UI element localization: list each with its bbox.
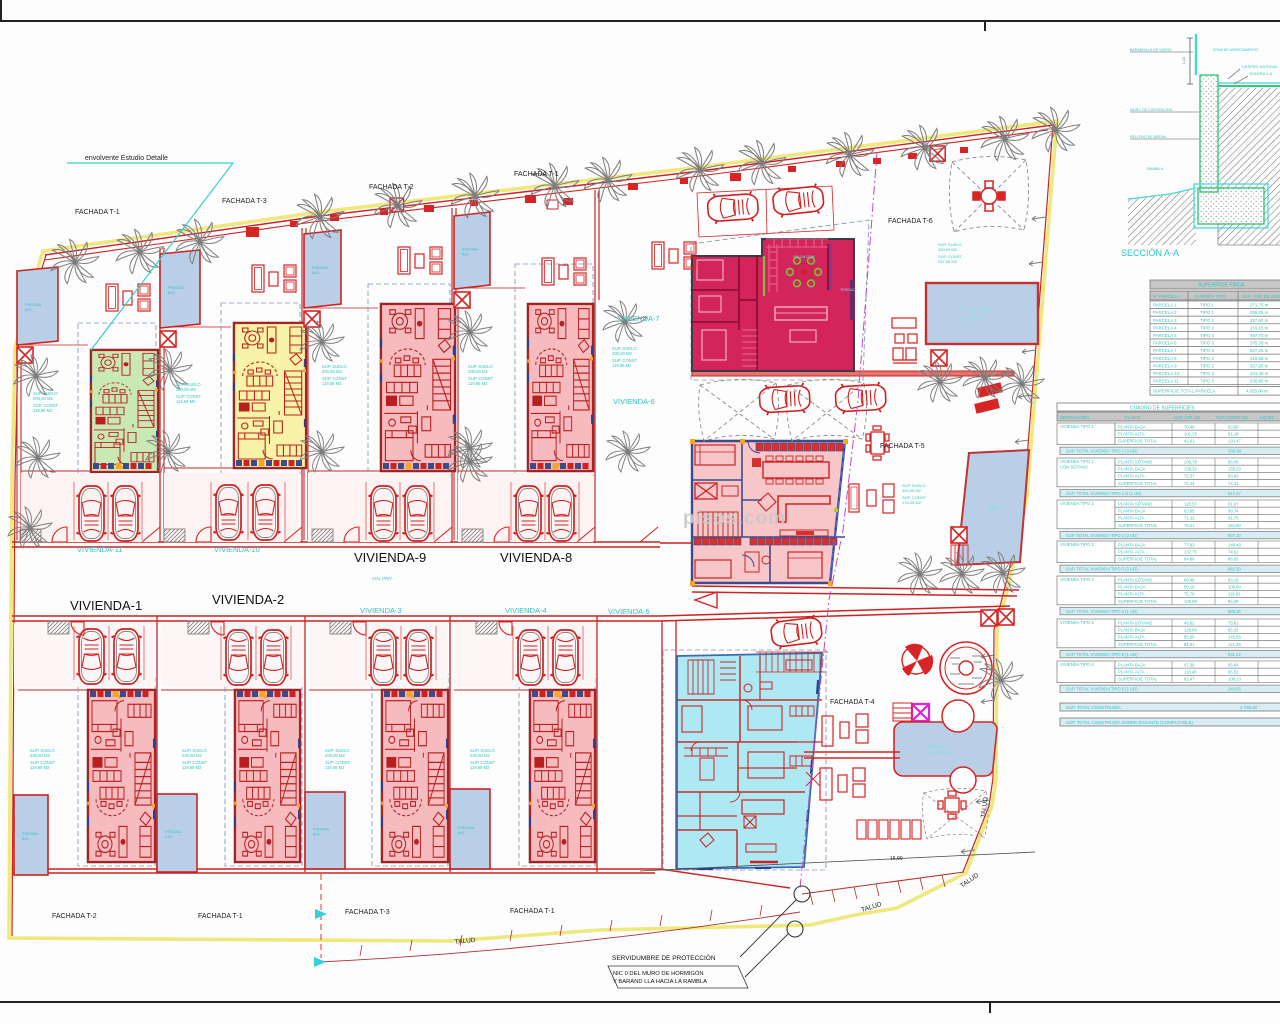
svg-text:119,66 M2: 119,66 M2 — [182, 765, 202, 770]
svg-text:216,15 m: 216,15 m — [1250, 325, 1269, 330]
svg-text:257,65 m: 257,65 m — [1250, 363, 1269, 368]
svg-text:40,00 m2: 40,00 m2 — [930, 750, 949, 755]
svg-text:RELLENO DE ARENA: RELLENO DE ARENA — [1130, 135, 1167, 139]
svg-text:257,60 m: 257,60 m — [1250, 318, 1269, 323]
svg-text:VIVIENDA TIPO 6: VIVIENDA TIPO 6 — [1060, 662, 1094, 667]
svg-text:FACHADA T-2: FACHADA T-2 — [369, 184, 414, 191]
svg-text:SUPERFICIE TOTAL: SUPERFICIE TOTAL — [1118, 439, 1158, 444]
svg-text:207,60 M2: 207,60 M2 — [938, 259, 958, 264]
svg-text:120,66: 120,66 — [1184, 628, 1197, 633]
svg-text:6x3: 6x3 — [312, 270, 319, 275]
svg-text:ZONA DE APARCAMIENTO: ZONA DE APARCAMIENTO — [1213, 48, 1258, 52]
svg-text:61,87: 61,87 — [1228, 501, 1239, 506]
svg-text:6x3: 6x3 — [168, 290, 175, 295]
svg-text:TIPO 2: TIPO 2 — [1200, 325, 1214, 330]
svg-text:VIVIENDA TIPO: VIVIENDA TIPO — [1194, 294, 1226, 299]
svg-text:PARCELA 1: PARCELA 1 — [1153, 303, 1177, 308]
svg-text:118,92: 118,92 — [1228, 592, 1241, 597]
svg-text:154,80: 154,80 — [1228, 523, 1241, 528]
svg-text:SUPERFICIE FINCA: SUPERFICIE FINCA — [1198, 283, 1245, 289]
svg-text:73,44: 73,44 — [1184, 481, 1195, 486]
svg-text:PLANTA ALTA: PLANTA ALTA — [1118, 516, 1145, 521]
svg-text:85,84: 85,84 — [1228, 662, 1239, 667]
svg-text:SUP. TOTAL VIVIENDA TIPO 2 (3: SUP. TOTAL VIVIENDA TIPO 2 (3 UD) — [1066, 533, 1138, 538]
svg-text:PLANTA ALTA: PLANTA ALTA — [1118, 474, 1145, 479]
svg-text:99,74: 99,74 — [1228, 509, 1239, 514]
svg-text:SUP. USO DE SUELO: SUP. USO DE SUELO — [1242, 294, 1280, 299]
svg-text:85,33: 85,33 — [1228, 628, 1239, 633]
svg-text:TIPO 3: TIPO 3 — [1200, 371, 1214, 376]
svg-text:VIVIENDA-11: VIVIENDA-11 — [77, 545, 122, 554]
svg-text:SPA: SPA — [988, 506, 998, 512]
svg-text:139,32: 139,32 — [1184, 467, 1197, 472]
svg-text:VIVIENDA-4: VIVIENDA-4 — [505, 606, 547, 615]
svg-text:PLANTA: PLANTA — [1125, 415, 1141, 420]
svg-text:119,66 M2: 119,66 M2 — [470, 765, 490, 770]
svg-text:CON SÓTANO: CON SÓTANO — [1060, 464, 1089, 469]
svg-text:VIVIENDA-6: VIVIENDA-6 — [613, 397, 655, 406]
svg-text:81,91: 81,91 — [1184, 642, 1195, 647]
svg-text:SUPERFICIE TOTAL PARCELA: SUPERFICIE TOTAL PARCELA — [1153, 389, 1216, 394]
svg-text:6x3: 6x3 — [22, 836, 29, 841]
svg-text:VIVIENDA TIPO 5: VIVIENDA TIPO 5 — [1060, 620, 1094, 625]
svg-text:75,76: 75,76 — [1184, 592, 1195, 597]
svg-text:178,45 M2: 178,45 M2 — [902, 500, 922, 505]
svg-text:119,66 M2: 119,66 M2 — [33, 408, 53, 413]
svg-text:350,00 M2: 350,00 M2 — [938, 247, 958, 252]
svg-text:PLANTA BAJA: PLANTA BAJA — [1118, 662, 1146, 667]
svg-text:MURO DE CONTENCION: MURO DE CONTENCION — [1130, 108, 1173, 112]
svg-text:VIVIENDA TIPO 2: VIVIENDA TIPO 2 — [1060, 501, 1094, 506]
svg-text:200,00 M2: 200,00 M2 — [322, 369, 342, 374]
svg-text:70,48: 70,48 — [1184, 424, 1195, 429]
svg-text:DESIGNACIÓN: DESIGNACIÓN — [1060, 415, 1089, 420]
svg-text:PLANTA ALTA: PLANTA ALTA — [1118, 550, 1145, 555]
svg-text:PARCELA 3: PARCELA 3 — [1153, 318, 1177, 323]
svg-text:PLANTA ALTA: PLANTA ALTA — [1118, 432, 1145, 437]
svg-text:42,61: 42,61 — [1184, 439, 1195, 444]
svg-text:CUADRO DE SUPERFICIES: CUADRO DE SUPERFICIES — [1130, 406, 1195, 412]
svg-text:507,10: 507,10 — [1228, 533, 1241, 538]
svg-text:94,86: 94,86 — [1184, 557, 1195, 562]
svg-text:PLANTA BAJA: PLANTA BAJA — [1118, 585, 1146, 590]
svg-text:119,66 M2: 119,66 M2 — [30, 765, 50, 770]
svg-text:PLANTA SÓTANO: PLANTA SÓTANO — [1118, 501, 1153, 506]
svg-text:VIVIENDA-9: VIVIENDA-9 — [354, 550, 426, 565]
svg-text:75,91: 75,91 — [1228, 620, 1239, 625]
svg-text:FACHADA T-5: FACHADA T-5 — [880, 443, 925, 450]
svg-text:TIPO 1: TIPO 1 — [1200, 310, 1214, 315]
svg-text:517,47: 517,47 — [1228, 491, 1241, 496]
svg-text:PLANTA SÓTANO: PLANTA SÓTANO — [1118, 620, 1153, 625]
svg-text:SUP. TOTAL CONSTRUIDA SOBRE RA: SUP. TOTAL CONSTRUIDA SOBRE RASANTE (COM… — [1066, 720, 1194, 725]
svg-text:VIVIENDA-2: VIVIENDA-2 — [212, 592, 284, 607]
svg-text:SUP. TOTAL VIVIENDA TIPO 6 (1: SUP. TOTAL VIVIENDA TIPO 6 (1 UD) — [1066, 687, 1138, 692]
svg-text:350,00 M2: 350,00 M2 — [902, 488, 922, 493]
svg-text:63,60: 63,60 — [1228, 424, 1239, 429]
svg-text:PARCELA 11: PARCELA 11 — [1153, 379, 1179, 384]
svg-text:83,95: 83,95 — [1184, 509, 1195, 514]
svg-text:TIPO 6: TIPO 6 — [1200, 348, 1214, 353]
svg-text:PLANTA BAJA: PLANTA BAJA — [1118, 467, 1146, 472]
svg-text:VIVIENDA TIPO 1: VIVIENDA TIPO 1 — [1060, 424, 1094, 429]
svg-text:PARCELA 6: PARCELA 6 — [1153, 341, 1177, 346]
svg-text:PISCINA: PISCINA — [962, 307, 990, 314]
svg-text:VIVIENDA-3: VIVIENDA-3 — [360, 606, 402, 615]
svg-text:96,45: 96,45 — [1228, 459, 1239, 464]
svg-text:SERVIDUMBRE DE PROTECCIÓN: SERVIDUMBRE DE PROTECCIÓN — [612, 953, 716, 962]
svg-text:200,00 M2: 200,00 M2 — [468, 369, 488, 374]
svg-text:531,22: 531,22 — [1228, 652, 1241, 657]
svg-text:envolvente Estudio Detalle: envolvente Estudio Detalle — [85, 155, 168, 162]
svg-text:PLANTA ALTA: PLANTA ALTA — [1118, 670, 1145, 675]
svg-text:SECCIÓN A-A: SECCIÓN A-A — [1121, 248, 1179, 258]
svg-text:PARCELA 4: PARCELA 4 — [1153, 325, 1177, 330]
svg-text:TIPO 2: TIPO 2 — [1200, 363, 1214, 368]
svg-text:119,66 M2: 119,66 M2 — [176, 399, 196, 404]
svg-text:200,00 M2: 200,00 M2 — [33, 396, 53, 401]
svg-text:93,28: 93,28 — [1228, 599, 1239, 604]
svg-text:53,92: 53,92 — [1228, 474, 1239, 479]
svg-text:106,78: 106,78 — [1184, 459, 1197, 464]
svg-text:PLANTA ALTA: PLANTA ALTA — [1118, 592, 1145, 597]
svg-text:497,70 m: 497,70 m — [1250, 333, 1269, 338]
svg-text:6x3: 6x3 — [458, 830, 465, 835]
svg-text:SUP. TOTAL CONSTRUIDA: SUP. TOTAL CONSTRUIDA — [1066, 705, 1121, 710]
svg-text:109,90: 109,90 — [1228, 585, 1241, 590]
svg-text:PLANTA BAJA: PLANTA BAJA — [1118, 542, 1146, 547]
svg-text:PARCELA 8: PARCELA 8 — [1153, 356, 1177, 361]
svg-text:200,00 M2: 200,00 M2 — [470, 753, 490, 758]
svg-text:889,35: 889,35 — [1228, 609, 1241, 614]
svg-text:119,66 M2: 119,66 M2 — [468, 381, 488, 386]
svg-text:RAMBLA: RAMBLA — [1147, 166, 1164, 171]
svg-text:6x3: 6x3 — [313, 832, 320, 837]
svg-text:140,49: 140,49 — [1228, 542, 1241, 547]
svg-text:119,66 M2: 119,66 M2 — [322, 381, 342, 386]
svg-text:SUPERFICIE TOTAL: SUPERFICIE TOTAL — [1118, 677, 1158, 682]
svg-text:662,30: 662,30 — [1228, 567, 1241, 572]
svg-text:101,29: 101,29 — [1184, 432, 1197, 437]
svg-text:BARANDILLA DE VIDRIO: BARANDILLA DE VIDRIO — [1130, 48, 1172, 52]
svg-text:74,31: 74,31 — [1228, 481, 1239, 486]
svg-text:200,00 M2: 200,00 M2 — [182, 753, 202, 758]
svg-text:86,65: 86,65 — [1228, 557, 1239, 562]
svg-text:108,13: 108,13 — [1228, 677, 1241, 682]
svg-text:TIPO 1: TIPO 1 — [1200, 303, 1214, 308]
svg-text:119,66 M2: 119,66 M2 — [612, 363, 632, 368]
svg-text:118,40: 118,40 — [1184, 670, 1197, 675]
svg-text:4.025,00 m: 4.025,00 m — [1246, 389, 1268, 394]
svg-text:PLANTA BAJA: PLANTA BAJA — [1118, 628, 1146, 633]
svg-text:SUP. CONST M2: SUP. CONST M2 — [1216, 415, 1249, 420]
svg-text:145,85: 145,85 — [1228, 635, 1241, 640]
svg-text:VIAL PRIV: VIAL PRIV — [372, 576, 392, 581]
svg-text:PISCINA: PISCINA — [928, 744, 946, 749]
svg-text:FACHADA T-1: FACHADA T-1 — [198, 913, 243, 920]
svg-text:LIQ M2: LIQ M2 — [1260, 415, 1274, 420]
svg-text:74,62: 74,62 — [1228, 550, 1239, 555]
svg-text:TIPO 1: TIPO 1 — [1200, 318, 1214, 323]
svg-text:1,10: 1,10 — [1182, 57, 1186, 64]
svg-text:137,75: 137,75 — [1184, 550, 1197, 555]
svg-text:85,65: 85,65 — [1184, 635, 1195, 640]
svg-text:200,00 M2: 200,00 M2 — [325, 753, 345, 758]
svg-text:200,00 M2: 200,00 M2 — [612, 351, 632, 356]
svg-text:47,39: 47,39 — [1184, 662, 1195, 667]
svg-text:6x3: 6x3 — [165, 834, 172, 839]
svg-text:PLANTA SÓTANO: PLANTA SÓTANO — [1118, 459, 1153, 464]
svg-text:120,47: 120,47 — [1228, 439, 1241, 444]
svg-text:TIPO 3: TIPO 3 — [1200, 379, 1214, 384]
svg-text:SUPERFICIE TOTAL: SUPERFICIE TOTAL — [1118, 523, 1158, 528]
svg-text:155,23: 155,23 — [1228, 467, 1241, 472]
svg-text:CESPED NATURAL: CESPED NATURAL — [1242, 64, 1279, 69]
svg-text:77,83: 77,83 — [1184, 542, 1195, 547]
svg-text:TIPO 4: TIPO 4 — [1200, 333, 1214, 338]
svg-text:271,75 m: 271,75 m — [1250, 303, 1269, 308]
svg-text:6x3: 6x3 — [25, 307, 32, 312]
svg-text:200,00 M2: 200,00 M2 — [176, 387, 196, 392]
svg-text:120,57: 120,57 — [1184, 501, 1197, 506]
svg-text:71,32: 71,32 — [1184, 516, 1195, 521]
svg-text:FACHADA T-4: FACHADA T-4 — [830, 699, 875, 706]
svg-text:216,65 m: 216,65 m — [1250, 356, 1269, 361]
svg-text:TIPO 5: TIPO 5 — [1200, 341, 1214, 346]
svg-text:SUP. TOTAL VIVIENDA TIPO 1 B (: SUP. TOTAL VIVIENDA TIPO 1 B (1 UD) — [1066, 491, 1142, 496]
svg-text:50,15: 50,15 — [1184, 585, 1195, 590]
svg-text:69,49: 69,49 — [1184, 577, 1195, 582]
svg-text:VIVIENDA-7: VIVIENDA-7 — [618, 314, 660, 323]
svg-text:259,05 m: 259,05 m — [1250, 310, 1269, 315]
svg-text:VIVIENDA TIPO 1: VIVIENDA TIPO 1 — [1060, 459, 1094, 464]
svg-text:530,80 m: 530,80 m — [1250, 379, 1269, 384]
svg-text:Y BARAND LLA HACIA LA RAMBLA: Y BARAND LLA HACIA LA RAMBLA — [613, 979, 707, 985]
svg-text:PLANTA SÓTANO: PLANTA SÓTANO — [1118, 577, 1153, 582]
svg-text:NIC 0 DEL MURO DE HORMIGÓN: NIC 0 DEL MURO DE HORMIGÓN — [613, 970, 704, 977]
svg-text:65,52: 65,52 — [1228, 670, 1239, 675]
svg-text:SUP. TOTAL VIVIENDA TIPO 3 (2: SUP. TOTAL VIVIENDA TIPO 3 (2 UD) — [1066, 567, 1138, 572]
svg-text:PARCELA 7: PARCELA 7 — [1153, 348, 1177, 353]
svg-text:PARCELA 2: PARCELA 2 — [1153, 310, 1177, 315]
svg-text:119,66 M2: 119,66 M2 — [325, 765, 345, 770]
svg-text:FACHADA T-1: FACHADA T-1 — [75, 209, 120, 216]
svg-text:16,90: 16,90 — [890, 856, 903, 862]
svg-text:61,18: 61,18 — [1228, 432, 1239, 437]
svg-text:75,21: 75,21 — [1184, 523, 1195, 528]
svg-text:121,35: 121,35 — [1228, 642, 1241, 647]
svg-text:SUP. TOTAL VIVIENDA TIPO 4 (1: SUP. TOTAL VIVIENDA TIPO 4 (1 UD) — [1066, 609, 1138, 614]
svg-text:PARCELA 5: PARCELA 5 — [1153, 333, 1177, 338]
svg-text:SUPERFICIE TOTAL: SUPERFICIE TOTAL — [1118, 557, 1158, 562]
svg-text:VIVIENDA-8: VIVIENDA-8 — [500, 550, 572, 565]
svg-text:SUP. TOTAL VIVIENDA TIPO 1 (3: SUP. TOTAL VIVIENDA TIPO 1 (3 UD) — [1066, 449, 1138, 454]
svg-text:VIVIENDA TIPO 3: VIVIENDA TIPO 3 — [1060, 542, 1094, 547]
svg-text:375,30 m: 375,30 m — [1250, 341, 1269, 346]
svg-text:SUP. TOTAL VIVIENDA TIPO 5 (1: SUP. TOTAL VIVIENDA TIPO 5 (1 UD) — [1066, 652, 1138, 657]
svg-text:SUPERFICIE TOTAL: SUPERFICIE TOTAL — [1118, 481, 1158, 486]
svg-text:TERRAZA: TERRAZA — [840, 288, 857, 292]
svg-text:VIVIENDA-10: VIVIENDA-10 — [214, 545, 260, 554]
svg-text:73,37: 73,37 — [1184, 474, 1195, 479]
svg-text:PLANTA BAJA: PLANTA BAJA — [1118, 509, 1146, 514]
svg-text:FACHADA T-1: FACHADA T-1 — [510, 908, 555, 915]
svg-text:PLANTA BAJA: PLANTA BAJA — [1118, 424, 1146, 429]
svg-text:81,70: 81,70 — [1228, 516, 1239, 521]
svg-text:241,40 m: 241,40 m — [1250, 371, 1269, 376]
svg-text:SUPERFICIE TOTAL: SUPERFICIE TOTAL — [1118, 599, 1158, 604]
svg-text:200,00 M2: 200,00 M2 — [30, 753, 50, 758]
svg-text:260,38: 260,38 — [1228, 449, 1241, 454]
svg-text:pisos.com: pisos.com — [683, 508, 786, 529]
svg-text:PARCELA 9: PARCELA 9 — [1153, 363, 1177, 368]
svg-text:100,99: 100,99 — [1184, 599, 1197, 604]
svg-text:SOLERA 1-A: SOLERA 1-A — [1249, 71, 1273, 76]
svg-text:VIVIENDA TIPO 4: VIVIENDA TIPO 4 — [1060, 577, 1094, 582]
svg-text:SUP. ÚTIL M2: SUP. ÚTIL M2 — [1174, 415, 1201, 420]
svg-text:VIVIENDA-5: VIVIENDA-5 — [608, 607, 650, 616]
svg-text:2.768,48: 2.768,48 — [1240, 705, 1258, 710]
svg-text:TIPO 2: TIPO 2 — [1200, 356, 1214, 361]
svg-text:VIVIENDA-1: VIVIENDA-1 — [70, 598, 142, 613]
svg-text:527,25 m: 527,25 m — [1250, 348, 1269, 353]
svg-text:SUPERFICIE TOTAL: SUPERFICIE TOTAL — [1118, 642, 1158, 647]
svg-text:62,47: 62,47 — [1184, 677, 1195, 682]
svg-text:60,00 m2: 60,00 m2 — [964, 316, 985, 322]
svg-text:243,55: 243,55 — [1228, 687, 1241, 692]
svg-text:48,62: 48,62 — [1184, 620, 1195, 625]
svg-text:Nº PARCELA: Nº PARCELA — [1153, 294, 1179, 299]
svg-text:FACHADA T-3: FACHADA T-3 — [222, 198, 267, 205]
svg-text:PARCELA 10: PARCELA 10 — [1153, 371, 1180, 376]
svg-text:FACHADA T-6: FACHADA T-6 — [888, 218, 933, 225]
svg-text:FACHADA T-3: FACHADA T-3 — [345, 909, 390, 916]
svg-text:FACHADA T-1: FACHADA T-1 — [514, 171, 559, 178]
svg-text:6x3: 6x3 — [462, 252, 469, 257]
svg-text:SALON COM: SALON COM — [793, 255, 815, 259]
svg-text:83,15: 83,15 — [1228, 577, 1239, 582]
svg-text:FACHADA T-2: FACHADA T-2 — [52, 913, 97, 920]
svg-text:PLANTA ALTA: PLANTA ALTA — [1118, 635, 1145, 640]
